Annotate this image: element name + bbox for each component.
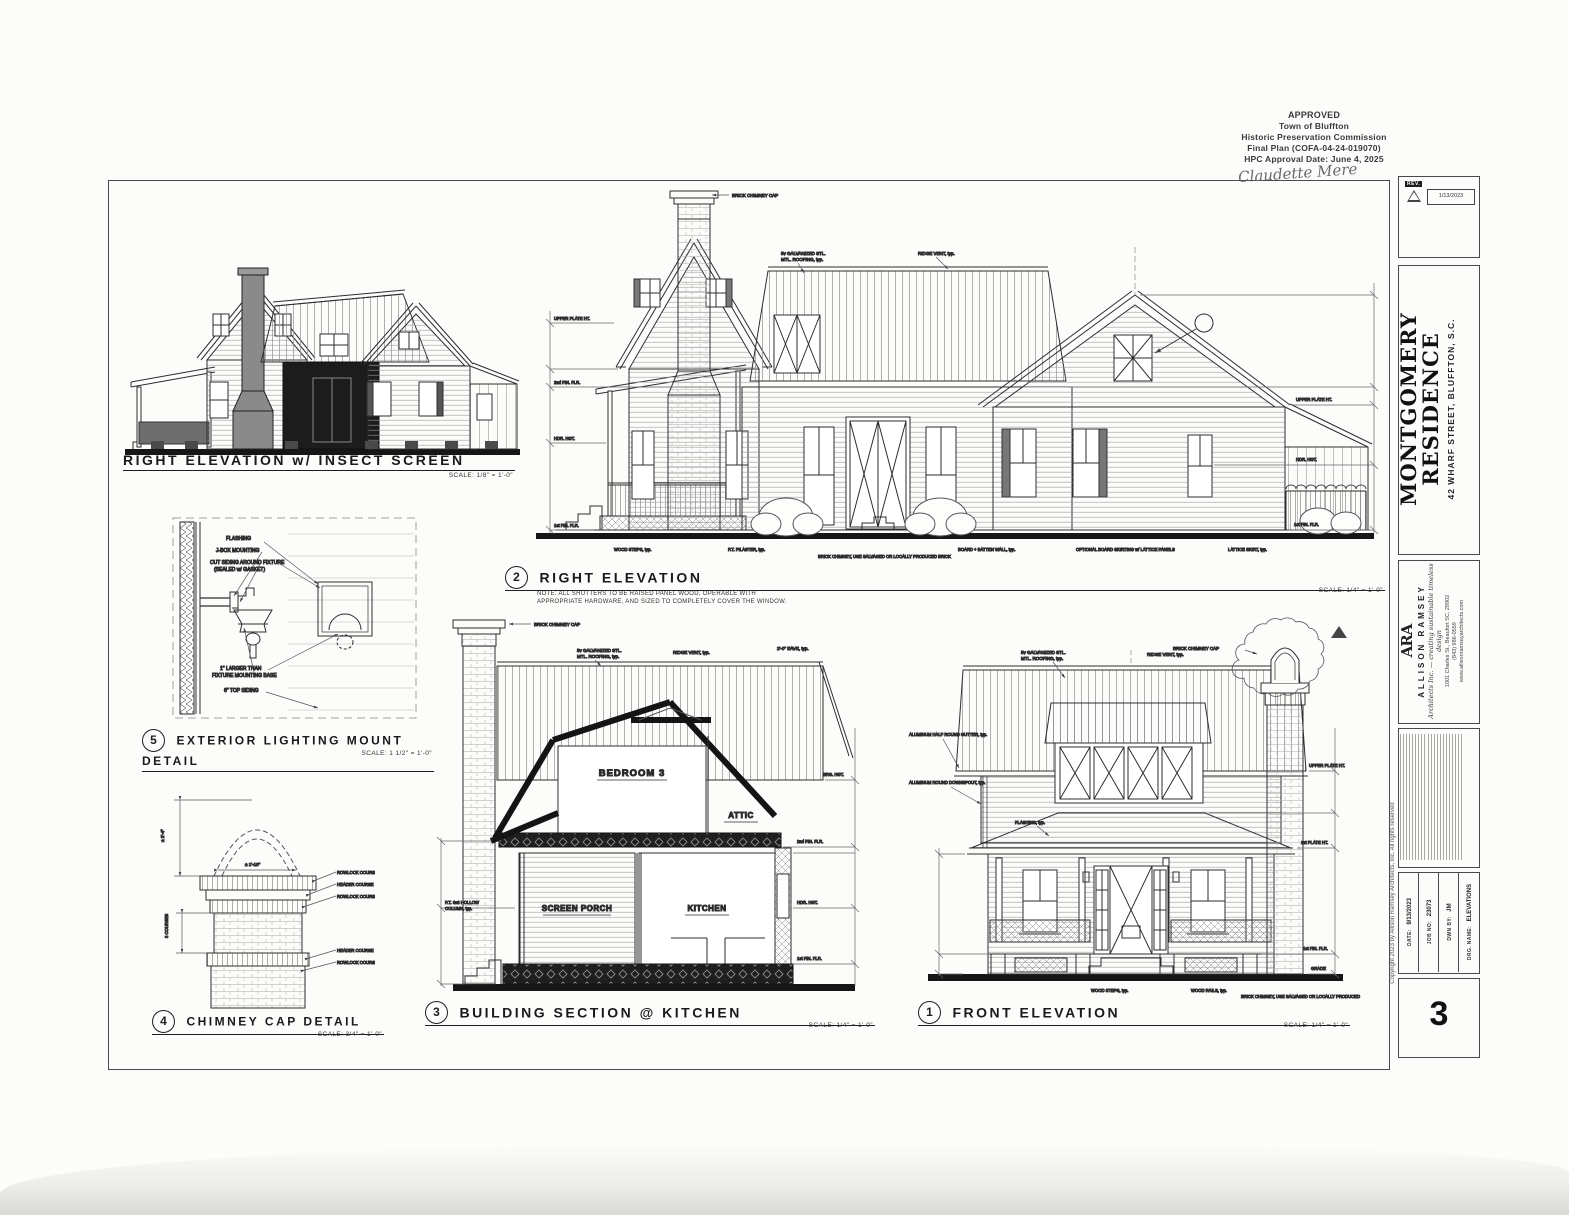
insect-elevation-label: RIGHT ELEVATION w/ INSECT SCREEN SCALE: … bbox=[123, 451, 515, 471]
scan-shadow bbox=[0, 1145, 1569, 1215]
svg-text:BRG. HGT.: BRG. HGT. bbox=[823, 772, 844, 777]
front-elevation-drawing: BRICK CHIMNEY CAP RIDGE VENT, typ. 5v GA… bbox=[903, 608, 1361, 1000]
shutter-note: APPROPRIATE HARDWARE, AND SIZED TO COMPL… bbox=[537, 599, 1385, 607]
chimney-detail-drawing: ± 2'-4" 3 COURSES ± 1'-10" ROWLOCK COURS… bbox=[150, 778, 375, 1010]
svg-text:± 2'-4": ± 2'-4" bbox=[160, 829, 165, 842]
approval-line: Historic Preservation Commission bbox=[1228, 132, 1400, 143]
svg-text:COLUMN, typ.: COLUMN, typ. bbox=[445, 906, 472, 911]
architect-info-rotated: ARA ALLISON RAMSEY Architects Inc. — cre… bbox=[1398, 560, 1478, 722]
title-underline bbox=[425, 1025, 875, 1026]
svg-text:BRICK CHIMNEY CAP: BRICK CHIMNEY CAP bbox=[732, 193, 778, 198]
view-scale: SCALE: 1/4" = 1'-0" bbox=[1319, 587, 1383, 594]
svg-text:BOARD + BATTEN WALL, typ.: BOARD + BATTEN WALL, typ. bbox=[958, 547, 1015, 552]
info-drg-rotated: DRG. NAME: ELEVATIONS bbox=[1458, 872, 1478, 972]
fine-print bbox=[1400, 734, 1426, 860]
drg-value: ELEVATIONS bbox=[1467, 884, 1473, 921]
building-section-drawing: BEDROOM 3 ATTIC SCREEN PORCH KITCHEN bbox=[425, 608, 883, 1000]
svg-text:CUT SIDING AROUND FIXTURE: CUT SIDING AROUND FIXTURE bbox=[210, 560, 285, 566]
view-scale: SCALE: 1 1/2" = 1'-0" bbox=[362, 750, 432, 757]
revision-date: 1/13/2023 bbox=[1427, 189, 1475, 205]
svg-text:BRICK CHIMNEY CAP: BRICK CHIMNEY CAP bbox=[534, 622, 580, 627]
svg-text:1st FIN. FLR.: 1st FIN. FLR. bbox=[1294, 522, 1319, 527]
view-title: CHIMNEY CAP DETAIL bbox=[186, 1015, 360, 1029]
svg-text:P.T. PILASTER, typ.: P.T. PILASTER, typ. bbox=[728, 547, 765, 552]
view-number: 1 bbox=[918, 1001, 941, 1024]
revision-label: REV. bbox=[1405, 181, 1422, 187]
view-scale: SCALE: 1/8" = 1'-0" bbox=[449, 472, 513, 479]
view-title: BUILDING SECTION @ KITCHEN bbox=[459, 1005, 741, 1021]
svg-text:LATTICE SKIRT, typ.: LATTICE SKIRT, typ. bbox=[1228, 547, 1267, 552]
svg-text:1st FIN. FLR.: 1st FIN. FLR. bbox=[1303, 946, 1328, 951]
svg-text:ALUMINUM HALF ROUND GUTTER, ty: ALUMINUM HALF ROUND GUTTER, typ. bbox=[909, 732, 987, 737]
view-title: RIGHT ELEVATION w/ INSECT SCREEN bbox=[123, 452, 465, 468]
svg-text:5v GALVANIZED STL.: 5v GALVANIZED STL. bbox=[781, 251, 826, 256]
chimney-detail-label: 4 CHIMNEY CAP DETAIL SCALE: 3/4" = 1'-0" bbox=[152, 1010, 384, 1035]
view-number: 4 bbox=[152, 1010, 175, 1033]
scanned-plan-sheet: APPROVED Town of Bluffton Historic Prese… bbox=[0, 0, 1569, 1215]
dwn-value: JM bbox=[1447, 903, 1453, 911]
svg-text:3 COURSES: 3 COURSES bbox=[164, 914, 169, 938]
svg-text:MTL. ROOFING, typ.: MTL. ROOFING, typ. bbox=[577, 654, 619, 659]
svg-text:ROWLOCK COURSE: ROWLOCK COURSE bbox=[337, 960, 375, 965]
svg-text:WOOD STEPS, typ.: WOOD STEPS, typ. bbox=[1091, 988, 1128, 993]
revision-triangle-icon bbox=[1407, 190, 1421, 202]
approval-title: APPROVED bbox=[1228, 110, 1400, 121]
building-section-label: 3 BUILDING SECTION @ KITCHEN SCALE: 1/4"… bbox=[425, 1001, 875, 1026]
info-dwn-rotated: DWN BY: JM bbox=[1438, 872, 1458, 972]
architect-name: ALLISON RAMSEY bbox=[1417, 560, 1426, 722]
svg-text:WOOD RAILS, typ.: WOOD RAILS, typ. bbox=[1191, 988, 1227, 993]
svg-text:FLASHING, typ.: FLASHING, typ. bbox=[1015, 820, 1045, 825]
front-elevation-label: 1 FRONT ELEVATION SCALE: 1/4" = 1'-0" bbox=[918, 1001, 1350, 1026]
approval-line: Town of Bluffton bbox=[1228, 121, 1400, 132]
svg-text:ROWLOCK COURSE: ROWLOCK COURSE bbox=[337, 894, 375, 899]
info-job-rotated: JOB NO: 23073 bbox=[1418, 872, 1438, 972]
sheet-number-box: 3 bbox=[1398, 978, 1480, 1058]
job-label: JOB NO: bbox=[1427, 921, 1433, 945]
svg-text:1" LARGER THAN: 1" LARGER THAN bbox=[220, 666, 262, 672]
view-scale: SCALE: 3/4" = 1'-0" bbox=[318, 1031, 382, 1038]
view-title: RIGHT ELEVATION bbox=[539, 570, 702, 586]
svg-text:RIDGE VENT, typ.: RIDGE VENT, typ. bbox=[918, 251, 955, 256]
sheet-number: 3 bbox=[1399, 995, 1479, 1034]
svg-text:UPPER PLATE HT.: UPPER PLATE HT. bbox=[1309, 763, 1345, 768]
job-value: 23073 bbox=[1427, 900, 1433, 917]
svg-text:OPTIONAL BOARD SKIRTING w/ LAT: OPTIONAL BOARD SKIRTING w/ LATTICE PANEL… bbox=[1076, 547, 1175, 552]
svg-text:P.T. 6x6 HOLLOW: P.T. 6x6 HOLLOW bbox=[445, 900, 479, 905]
info-date-rotated: DATE: 9/13/2023 bbox=[1398, 872, 1418, 972]
svg-text:WOOD STEPS, typ.: WOOD STEPS, typ. bbox=[614, 547, 651, 552]
view-scale: SCALE: 1/4" = 1'-0" bbox=[809, 1022, 873, 1029]
svg-text:BRICK CHIMNEY CAP: BRICK CHIMNEY CAP bbox=[1173, 646, 1219, 651]
copyright-text: Copyright 2023 by Allison Ramsey Archite… bbox=[1390, 728, 1400, 1058]
shutter-note: NOTE: ALL SHUTTERS TO BE RAISED PANEL WO… bbox=[537, 591, 1385, 599]
svg-text:RIDGE VENT, typ.: RIDGE VENT, typ. bbox=[1147, 652, 1184, 657]
title-underline bbox=[123, 470, 515, 471]
view-number: 2 bbox=[505, 566, 528, 589]
svg-text:FIXTURE MOUNTING BASE: FIXTURE MOUNTING BASE bbox=[212, 673, 277, 679]
svg-text:1st FIN. FLR.: 1st FIN. FLR. bbox=[797, 956, 822, 961]
svg-text:UPPER PLATE HT.: UPPER PLATE HT. bbox=[1296, 397, 1332, 402]
svg-text:J-BOX MOUNTING: J-BOX MOUNTING bbox=[216, 548, 259, 554]
svg-text:GRADE: GRADE bbox=[1311, 966, 1326, 971]
svg-text:KITCHEN: KITCHEN bbox=[687, 904, 726, 913]
svg-text:ROWLOCK COURSE: ROWLOCK COURSE bbox=[337, 870, 375, 875]
architect-logo: ARA bbox=[1398, 560, 1416, 722]
drg-label: DRG. NAME: bbox=[1467, 926, 1473, 960]
approval-line: Final Plan (COFA-04-24-019070) bbox=[1228, 143, 1400, 154]
view-number: 5 bbox=[142, 729, 165, 752]
svg-text:FLASHING: FLASHING bbox=[226, 536, 251, 542]
project-address: 42 WHARF STREET, BLUFFTON, S.C. bbox=[1446, 265, 1456, 553]
right-elevation-label: 2 RIGHT ELEVATION SCALE: 1/4" = 1'-0" NO… bbox=[505, 566, 1385, 606]
architect-address: 1001 Charles St., Beaufort SC, 29902 bbox=[1445, 595, 1451, 687]
svg-text:(SEALED w/ GASKET): (SEALED w/ GASKET) bbox=[214, 567, 265, 573]
dwn-label: DWN BY: bbox=[1447, 916, 1453, 940]
lighting-detail-drawing: FLASHING J-BOX MOUNTING CUT SIDING AROUN… bbox=[168, 512, 423, 730]
svg-text:HEADER COURSE: HEADER COURSE bbox=[337, 948, 374, 953]
architect-web: www.allisonramseyarchitects.com bbox=[1459, 600, 1465, 682]
title-underline bbox=[142, 771, 434, 772]
date-value: 9/13/2023 bbox=[1407, 898, 1413, 925]
svg-text:HDR. HGT.: HDR. HGT. bbox=[554, 436, 575, 441]
svg-text:BEDROOM 3: BEDROOM 3 bbox=[599, 768, 666, 779]
fine-print-rotated bbox=[1398, 728, 1478, 866]
view-number: 3 bbox=[425, 1001, 448, 1024]
svg-text:± 1'-10": ± 1'-10" bbox=[245, 862, 261, 867]
svg-text:HDR. HGT.: HDR. HGT. bbox=[1296, 457, 1317, 462]
svg-text:2'-0" EAVE, typ.: 2'-0" EAVE, typ. bbox=[777, 646, 809, 651]
approval-stamp: APPROVED Town of Bluffton Historic Prese… bbox=[1228, 110, 1400, 165]
insect-elevation-drawing bbox=[115, 256, 530, 466]
architect-phone: (843) 986-0559 bbox=[1452, 622, 1458, 660]
svg-text:BRICK CHIMNEY, USE SALVAGED OR: BRICK CHIMNEY, USE SALVAGED OR LOCALLY P… bbox=[1241, 994, 1361, 999]
svg-text:UPPER PLATE HT.: UPPER PLATE HT. bbox=[554, 316, 590, 321]
svg-text:5v GALVANIZED STL.: 5v GALVANIZED STL. bbox=[577, 648, 622, 653]
svg-text:2nd FIN. FLR.: 2nd FIN. FLR. bbox=[797, 839, 823, 844]
revision-box: REV. 1/13/2023 bbox=[1398, 176, 1480, 258]
svg-text:1st PLATE HT.: 1st PLATE HT. bbox=[1301, 840, 1328, 845]
svg-text:HEADER COURSE: HEADER COURSE bbox=[337, 882, 374, 887]
architect-tagline: Architects Inc. — creating sustainable t… bbox=[1427, 560, 1443, 722]
fine-print bbox=[1428, 734, 1462, 860]
project-name: MONTGOMERY RESIDENCE bbox=[1398, 265, 1442, 553]
svg-text:BRICK CHIMNEY, USE SALVAGED OR: BRICK CHIMNEY, USE SALVAGED OR LOCALLY P… bbox=[818, 554, 951, 559]
svg-text:ALUMINUM ROUND DOWNSPOUT, typ.: ALUMINUM ROUND DOWNSPOUT, typ. bbox=[909, 780, 985, 785]
svg-text:RIDGE VENT, typ.: RIDGE VENT, typ. bbox=[673, 650, 710, 655]
date-label: DATE: bbox=[1407, 929, 1413, 946]
lighting-detail-label: 5 EXTERIOR LIGHTING MOUNT DETAIL SCALE: … bbox=[142, 729, 434, 772]
view-scale: SCALE: 1/4" = 1'-0" bbox=[1284, 1022, 1348, 1029]
svg-text:MTL. ROOFING, typ.: MTL. ROOFING, typ. bbox=[1021, 656, 1063, 661]
svg-text:5v GALVANIZED STL.: 5v GALVANIZED STL. bbox=[1021, 650, 1066, 655]
right-elevation-drawing: BRICK CHIMNEY CAP 5v GALVANIZED STL. MTL… bbox=[528, 183, 1386, 563]
svg-text:HDR. HGT.: HDR. HGT. bbox=[797, 900, 818, 905]
svg-text:6" TOP SIDING: 6" TOP SIDING bbox=[224, 688, 259, 694]
project-title-rotated: MONTGOMERY RESIDENCE 42 WHARF STREET, BL… bbox=[1398, 265, 1478, 553]
svg-text:ATTIC: ATTIC bbox=[728, 811, 753, 820]
svg-text:2nd FIN. FLR.: 2nd FIN. FLR. bbox=[554, 380, 580, 385]
svg-text:1st FIN. FLR.: 1st FIN. FLR. bbox=[554, 523, 579, 528]
view-title: FRONT ELEVATION bbox=[952, 1005, 1120, 1021]
svg-text:SCREEN PORCH: SCREEN PORCH bbox=[542, 904, 612, 913]
svg-text:MTL. ROOFING, typ.: MTL. ROOFING, typ. bbox=[781, 257, 823, 262]
